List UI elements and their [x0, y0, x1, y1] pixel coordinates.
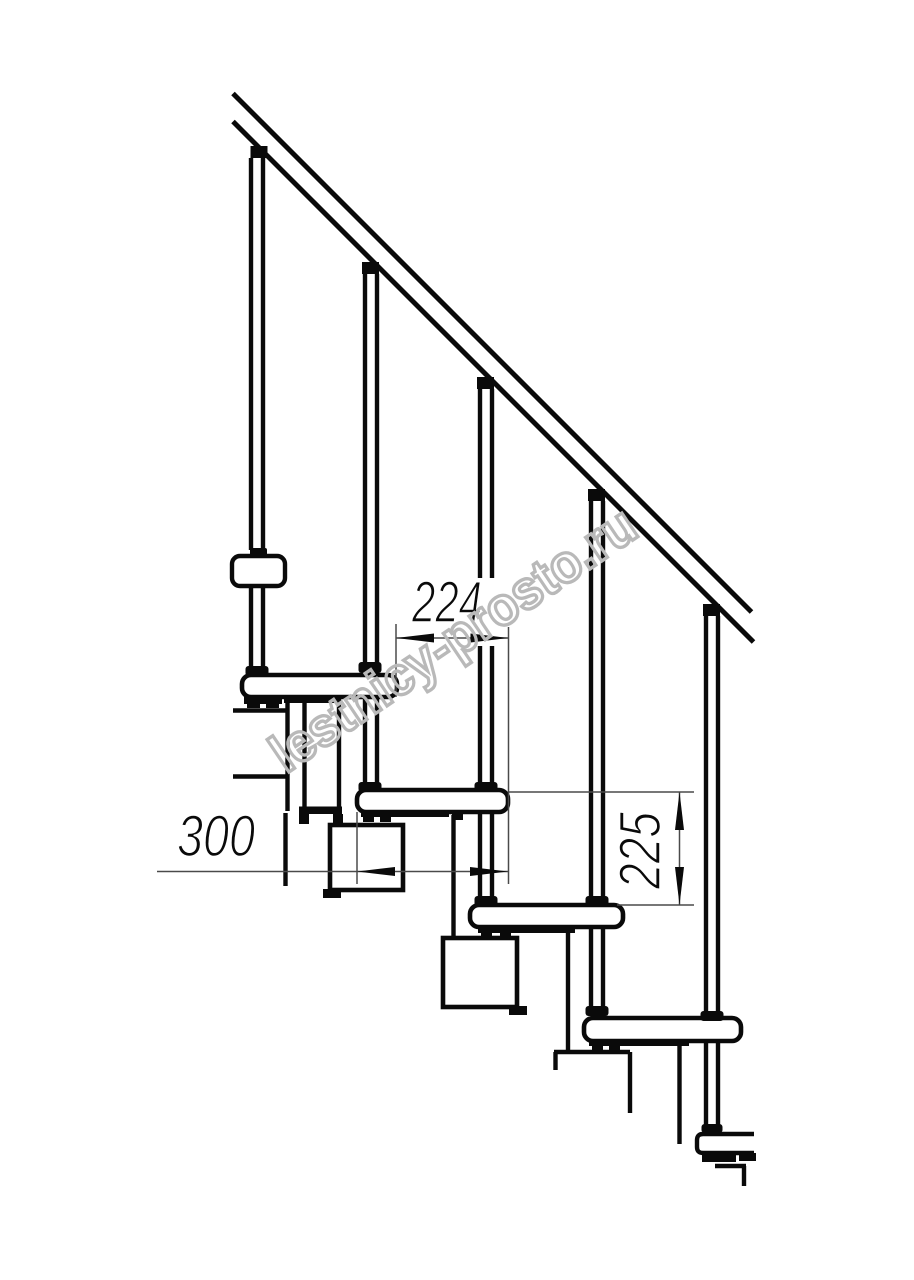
svg-text:225: 225 — [608, 811, 673, 889]
svg-text:300: 300 — [177, 804, 255, 869]
